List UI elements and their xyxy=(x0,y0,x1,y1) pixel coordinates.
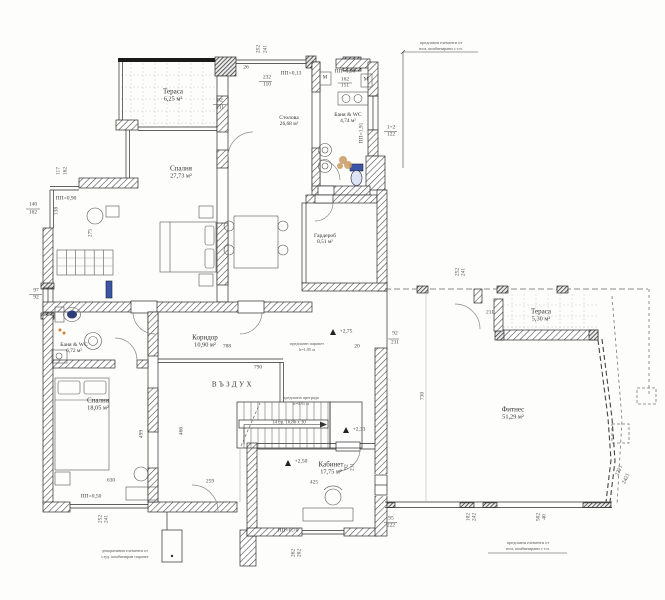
dim-630: 630 xyxy=(107,478,115,484)
dim-162-b: 162 xyxy=(63,167,69,175)
dim-92-c: 92 xyxy=(392,331,398,337)
labels-layer: Тераса6,25 м² Спалня27,73 м² Столова26,6… xyxy=(0,0,665,600)
dim-241-top: 241 xyxy=(263,45,269,53)
dim-117: 117 xyxy=(56,167,62,175)
bottom-left-note-line2: студ. комбиниран парапет xyxy=(101,555,148,559)
railing-note-1-line1: предпазен парапет xyxy=(290,342,324,346)
dim-222: 222 xyxy=(387,523,395,529)
dim-20: 20 xyxy=(354,344,360,350)
room-label-bedroom-1: Спалня27,73 м² xyxy=(170,165,192,180)
room-label-terrace-1: Тераса6,25 м² xyxy=(163,88,183,103)
dim-275: 275 xyxy=(88,229,94,237)
railing-note-2-line1: предпазна преграда xyxy=(283,396,319,400)
dim-122: 122 xyxy=(387,132,395,138)
dim-252-top: 252 xyxy=(256,45,262,53)
bottom-left-note-line1: декоративни елементи от xyxy=(102,549,148,553)
dim-211-d: 211 xyxy=(350,463,356,471)
dim-151: 151 xyxy=(341,83,349,89)
room-label-office: Кабинет17,75 м² xyxy=(319,461,344,476)
stairs-label: 14 бр. 16,86 х 30 xyxy=(272,422,306,427)
machine-mark-2: М xyxy=(364,78,368,83)
dim-788: 788 xyxy=(223,344,231,350)
dim-40: 40 xyxy=(542,514,548,520)
dim-790: 790 xyxy=(254,365,262,371)
bottom-right-note-line1: предпазни елементи от xyxy=(507,541,549,545)
dim-1plus2: 1+2 xyxy=(387,125,396,131)
dim-97: 97 xyxy=(33,288,39,294)
bottom-right-note-line2: юга, комбинирани с т.н. xyxy=(506,547,549,551)
dim-92-a: 92 xyxy=(217,98,223,104)
dim-211-a: 211 xyxy=(216,105,224,111)
dim-259: 259 xyxy=(206,479,214,485)
top-note-line1: предпазни елементи от xyxy=(420,41,462,45)
dim-138: 138 xyxy=(54,207,60,215)
dim-162-c: 162 xyxy=(29,210,37,216)
dim-730: 730 xyxy=(420,392,426,400)
top-note-line2: юга, комбинирани с т.н. xyxy=(419,47,462,51)
dim-242: 242 xyxy=(472,513,478,521)
level-pp050: ПП=0,50 xyxy=(81,494,102,500)
room-label-air-void: ВЪЗДУХ xyxy=(212,382,254,389)
dim-140: 140 xyxy=(29,202,37,208)
dim-92-b: 92 xyxy=(33,295,39,301)
railing-note-1-line2: h=1,05 м xyxy=(299,348,315,352)
room-label-wardrobe: Гардероб8,51 м² xyxy=(314,233,336,245)
elevation-275: +2,75 xyxy=(340,329,353,335)
dim-211-b: 211 xyxy=(391,340,399,346)
elevation-250: +2,50 xyxy=(295,459,308,465)
level-pp090: ПП=0,90 xyxy=(56,196,77,202)
dim-241-bl: 241 xyxy=(104,515,110,523)
dim-466: 466 xyxy=(179,427,185,435)
dim-211-c: 211 xyxy=(486,310,494,316)
room-label-corridor: Коридор10,90 м² xyxy=(192,334,218,349)
railing-note-2-line2: h=0,95 м xyxy=(293,402,309,406)
dim-241-mid: 241 xyxy=(461,268,467,276)
dim-425: 425 xyxy=(310,480,318,486)
elevation-233: +2,33 xyxy=(353,427,366,433)
dim-499: 499 xyxy=(139,430,145,438)
level-pp013: ПП=0,13 xyxy=(281,71,302,77)
room-label-fitness: Фитнес51,29 м² xyxy=(502,406,524,421)
level-pp191: ПП=1,91 xyxy=(359,123,365,144)
dim-232: 232 xyxy=(263,75,271,81)
machine-mark-1: М xyxy=(323,76,327,81)
level-pp190: ПП=1,90 xyxy=(335,69,356,75)
level-pp070: ПП=0,70 xyxy=(278,528,299,534)
dim-110: 110 xyxy=(263,82,271,88)
dim-95: 95 xyxy=(388,516,394,522)
floor-plan-page: Тераса6,25 м² Спалня27,73 м² Столова26,6… xyxy=(0,0,665,600)
dim-26: 26 xyxy=(243,65,249,71)
room-label-dining: Столова26,68 м² xyxy=(279,115,298,127)
room-label-terrace-2: Тераса5,30 м² xyxy=(531,308,551,323)
room-label-bath-2: Баня & WC6,72 м² xyxy=(60,342,87,354)
dim-2421: 2421 xyxy=(622,473,632,485)
room-label-bedroom-2: Спалня18,05 м² xyxy=(87,397,109,412)
dim-202: 202 xyxy=(297,549,303,557)
